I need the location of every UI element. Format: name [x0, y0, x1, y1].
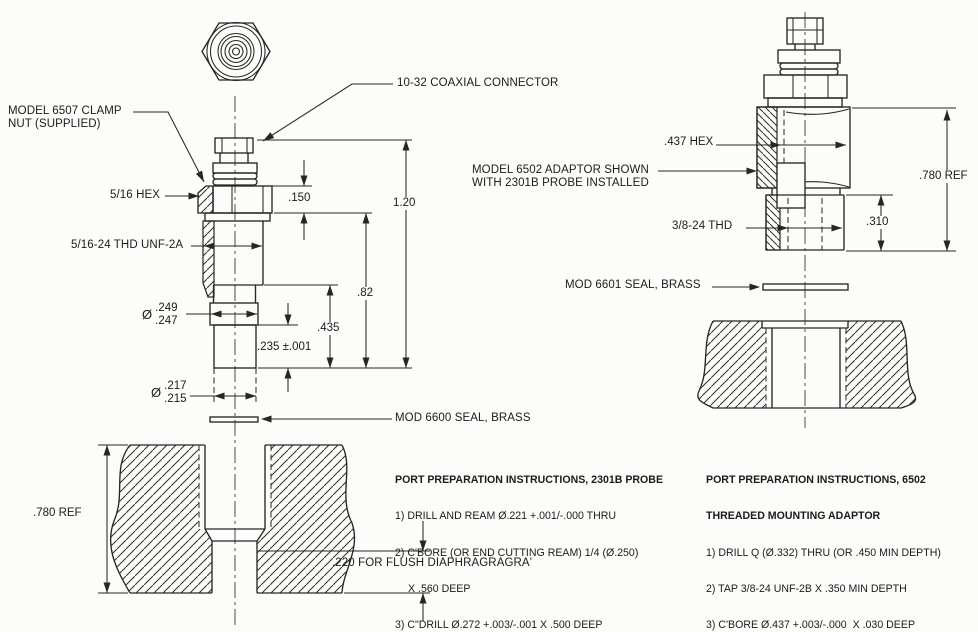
instruction-line: 2) TAP 3/8-24 UNF-2B X .350 MIN DEPTH [706, 583, 974, 595]
instruction-line: 3) C"DRILL Ø.272 +.003/-.001 X .500 DEEP [395, 619, 695, 631]
coax-connector-label: 10-32 COAXIAL CONNECTOR [397, 77, 558, 90]
major-diameter-upper: .249 [155, 302, 177, 315]
diameter-symbol-icon: Ø [151, 385, 161, 400]
major-diameter-lower: .247 [155, 315, 177, 328]
instruction-line: 2) C'BORE (OR END CUTTING REAM) 1/4 (Ø.2… [395, 547, 695, 559]
adaptor-model-label-line1: MODEL 6502 ADAPTOR SHOWN [472, 164, 649, 177]
thread-spec-label: 5/16-24 THD UNF-2A [71, 239, 183, 252]
instruction-line: 3) C'BORE Ø.437 +.003/-.000 X .030 DEEP [706, 619, 974, 631]
probe-port-instructions: PORT PREPARATION INSTRUCTIONS, 2301B PRO… [395, 450, 695, 632]
dim-hex-height: .150 [288, 192, 310, 205]
instruction-line: 1) DRILL AND REAM Ø.221 +.001/-.000 THRU [395, 510, 695, 522]
dim-overall-length: 1.20 [391, 197, 417, 210]
tip-diameter-callout: Ø .217 .215 [151, 380, 187, 405]
adaptor-port-instructions: PORT PREPARATION INSTRUCTIONS, 6502 THRE… [706, 450, 974, 632]
clamp-nut-label-line2: NUT (SUPPLIED) [8, 118, 101, 131]
port-depth-ref-label: .780 REF [33, 507, 82, 520]
adaptor-hex-label: .437 HEX [664, 136, 713, 149]
dim-tip-length: .235 ±.001 [257, 341, 311, 354]
instruction-line: X .560 DEEP [395, 583, 695, 595]
adaptor-side-view [757, 18, 850, 290]
major-diameter-callout: Ø .249 .247 [142, 302, 178, 327]
seal-6601-label: MOD 6601 SEAL, BRASS [565, 279, 701, 292]
seal-6600-label: MOD 6600 SEAL, BRASS [395, 412, 531, 425]
diameter-symbol-icon: Ø [142, 307, 152, 322]
clamp-nut-label-line1: MODEL 6507 CLAMP [8, 105, 122, 118]
hex-size-label: 5/16 HEX [110, 189, 160, 202]
probe-instructions-title: PORT PREPARATION INSTRUCTIONS, 2301B PRO… [395, 474, 695, 486]
dim-mid-length: .82 [355, 287, 375, 300]
adaptor-thread-label: 3/8-24 THD [672, 220, 732, 233]
adaptor-depth-ref-label: .780 REF [917, 170, 970, 183]
adaptor-instructions-title-line2: THREADED MOUNTING ADAPTOR [706, 510, 974, 522]
probe-port-section [111, 445, 355, 593]
tip-diameter-lower: .215 [164, 393, 186, 406]
adaptor-instructions-title-line1: PORT PREPARATION INSTRUCTIONS, 6502 [706, 474, 974, 486]
dim-lower-length: .435 [315, 322, 341, 335]
tip-diameter-upper: .217 [164, 380, 186, 393]
probe-top-view [202, 23, 270, 81]
adaptor-port-section [698, 321, 916, 408]
adaptor-model-label-line2: WITH 2301B PROBE INSTALLED [472, 177, 649, 190]
dim-thread-depth: .310 [864, 216, 890, 229]
instruction-line: 1) DRILL Q (Ø.332) THRU (OR .450 MIN DEP… [706, 547, 974, 559]
engineering-drawing-sheet: 10-32 COAXIAL CONNECTOR MODEL 6507 CLAMP… [0, 0, 978, 632]
